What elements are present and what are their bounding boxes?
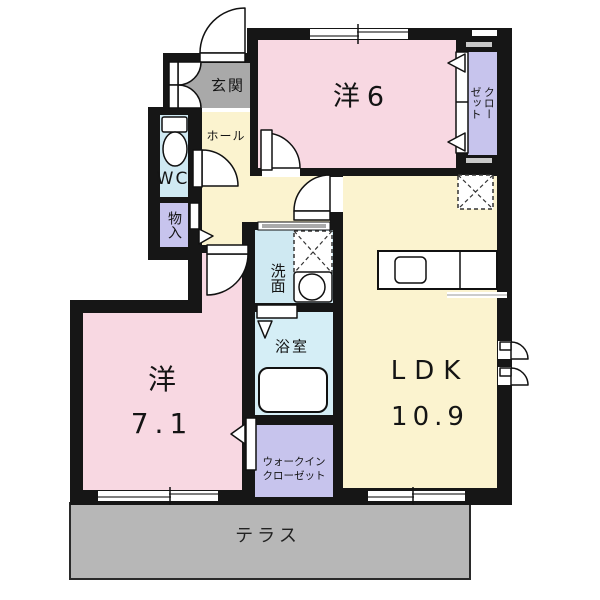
label-ldk: LDK10.9 <box>391 348 470 440</box>
label-closet: クローゼット <box>469 87 495 120</box>
western71-door-leaf <box>207 245 248 254</box>
kitchen-sink <box>395 257 426 283</box>
entrance-door-leaf <box>200 53 245 62</box>
label-western71: 洋7.1 <box>131 358 194 446</box>
label-hall: ホール <box>206 130 245 144</box>
ldk-door-gap <box>330 177 343 212</box>
genkan-step <box>202 108 250 112</box>
closet-shelf-bottom <box>466 158 492 163</box>
toilet-tank <box>162 117 187 132</box>
label-western71-size: 7.1 <box>131 407 194 440</box>
label-genkan: 玄関 <box>211 77 245 94</box>
shoe-cabinet-leaf-top <box>169 62 178 85</box>
label-closet-col1: クロー <box>482 87 495 120</box>
window-western6-top <box>310 29 408 39</box>
casement-window-swing-2 <box>511 368 528 385</box>
entrance-door-swing <box>200 8 245 53</box>
casement-window-leaf-2 <box>500 368 511 376</box>
window-western71-bottom <box>98 491 218 501</box>
room-ldk <box>343 176 497 488</box>
casement-window-leaf-1 <box>500 342 511 350</box>
label-washroom: 洗面 <box>268 263 285 293</box>
wc-door-leaf <box>193 150 202 187</box>
label-walkin-line2: クローゼット <box>263 470 326 482</box>
ldk-door-leaf <box>294 211 330 220</box>
wash-basin <box>299 274 325 300</box>
label-bathroom: 浴室 <box>275 338 309 355</box>
label-ldk-size: 10.9 <box>391 402 469 432</box>
label-western6: 洋6 <box>333 81 391 112</box>
storage-door-leaf <box>190 203 199 229</box>
label-storage: 物入 <box>166 211 182 239</box>
casement-window-swing-1 <box>511 342 528 359</box>
wall-vent-top-right <box>472 30 497 36</box>
washroom-sliding-panel <box>262 224 326 228</box>
label-western71-name: 洋 <box>148 363 176 396</box>
label-closet-col2: ゼット <box>469 87 482 120</box>
window-ldk-bottom <box>368 491 465 501</box>
closet-shelf-top <box>466 42 492 47</box>
walkin-door-leaf <box>246 418 256 470</box>
label-walkin-line1: ウォークイン <box>263 456 326 468</box>
bathtub <box>259 368 327 412</box>
toilet-bowl <box>163 132 187 166</box>
shoe-cabinet-leaf-bottom <box>169 85 178 108</box>
floorplan-canvas <box>0 0 600 600</box>
bathroom-door-leaf <box>257 305 297 318</box>
western6-door-leaf <box>261 130 272 170</box>
label-wc: WC <box>157 170 190 190</box>
label-ldk-name: LDK <box>391 356 470 386</box>
label-walkin-closet: ウォークインクローゼット <box>263 455 326 483</box>
floorplan: 玄関 ホール WC 物入 洋6 クローゼット 洗面 浴室 ウォークインクローゼッ… <box>0 0 600 600</box>
label-terrace: テラス <box>235 527 301 548</box>
